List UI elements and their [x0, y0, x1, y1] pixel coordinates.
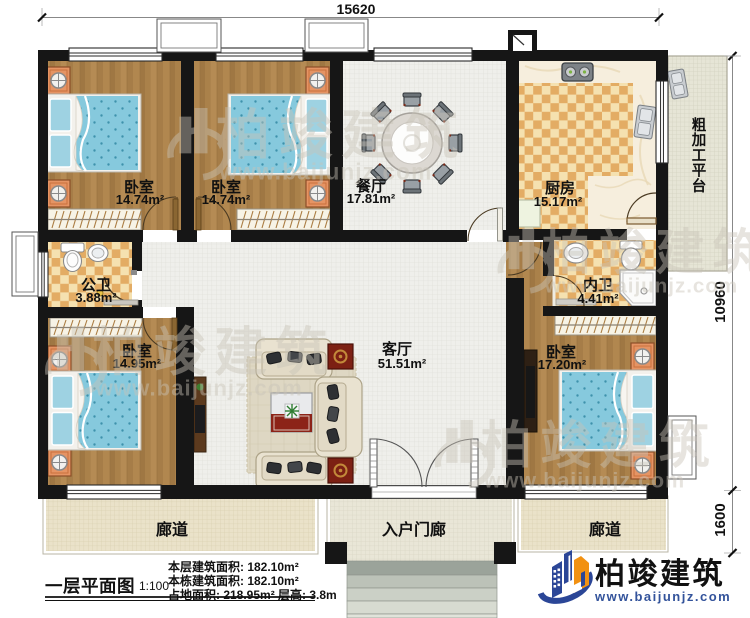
svg-text:51.51m²: 51.51m² [378, 356, 427, 371]
svg-text:工: 工 [692, 148, 707, 164]
svg-text:本层建筑面积: 182.10m²: 本层建筑面积: 182.10m² [168, 559, 299, 574]
svg-text:www.baijunjz.com: www.baijunjz.com [95, 375, 303, 400]
svg-text:www.baijunjz.com: www.baijunjz.com [218, 158, 432, 184]
svg-text:入户门廊: 入户门廊 [382, 520, 446, 539]
svg-text:占地面积: 218.95m² 层高: 3.8m: 占地面积: 218.95m² 层高: 3.8m [168, 587, 337, 602]
svg-text:17.20m²: 17.20m² [538, 357, 587, 372]
svg-text:14.74m²: 14.74m² [116, 192, 165, 207]
svg-text:柏竣建筑: 柏竣建筑 [481, 417, 718, 474]
svg-text:15.17m²: 15.17m² [534, 194, 583, 209]
svg-text:14.74m²: 14.74m² [202, 192, 251, 207]
svg-text:加: 加 [691, 132, 707, 149]
svg-text:15620: 15620 [337, 1, 376, 17]
svg-text:www.baijunjz.com: www.baijunjz.com [594, 589, 731, 604]
svg-text:1600: 1600 [712, 503, 729, 536]
svg-text:17.81m²: 17.81m² [347, 191, 396, 206]
svg-text:柏竣建筑: 柏竣建筑 [93, 323, 337, 382]
svg-text:粗: 粗 [692, 117, 707, 134]
svg-text:廊道: 廊道 [589, 520, 621, 539]
svg-text:本栋建筑面积: 182.10m²: 本栋建筑面积: 182.10m² [168, 573, 299, 588]
svg-text:www.baijunjz.com: www.baijunjz.com [483, 468, 685, 492]
svg-text:台: 台 [692, 177, 707, 195]
svg-text:廊道: 廊道 [156, 520, 188, 539]
svg-text:一层平面图: 一层平面图 [45, 576, 135, 596]
svg-text:柏竣建筑: 柏竣建筑 [216, 105, 467, 165]
svg-text:柏竣建筑: 柏竣建筑 [595, 557, 725, 591]
svg-text:3.88m²: 3.88m² [75, 290, 117, 305]
svg-text:www.baijunjz.com: www.baijunjz.com [544, 275, 738, 298]
svg-text:柏竣建筑: 柏竣建筑 [542, 226, 750, 280]
svg-text:1:100: 1:100 [139, 579, 169, 593]
svg-text:平: 平 [692, 163, 707, 180]
